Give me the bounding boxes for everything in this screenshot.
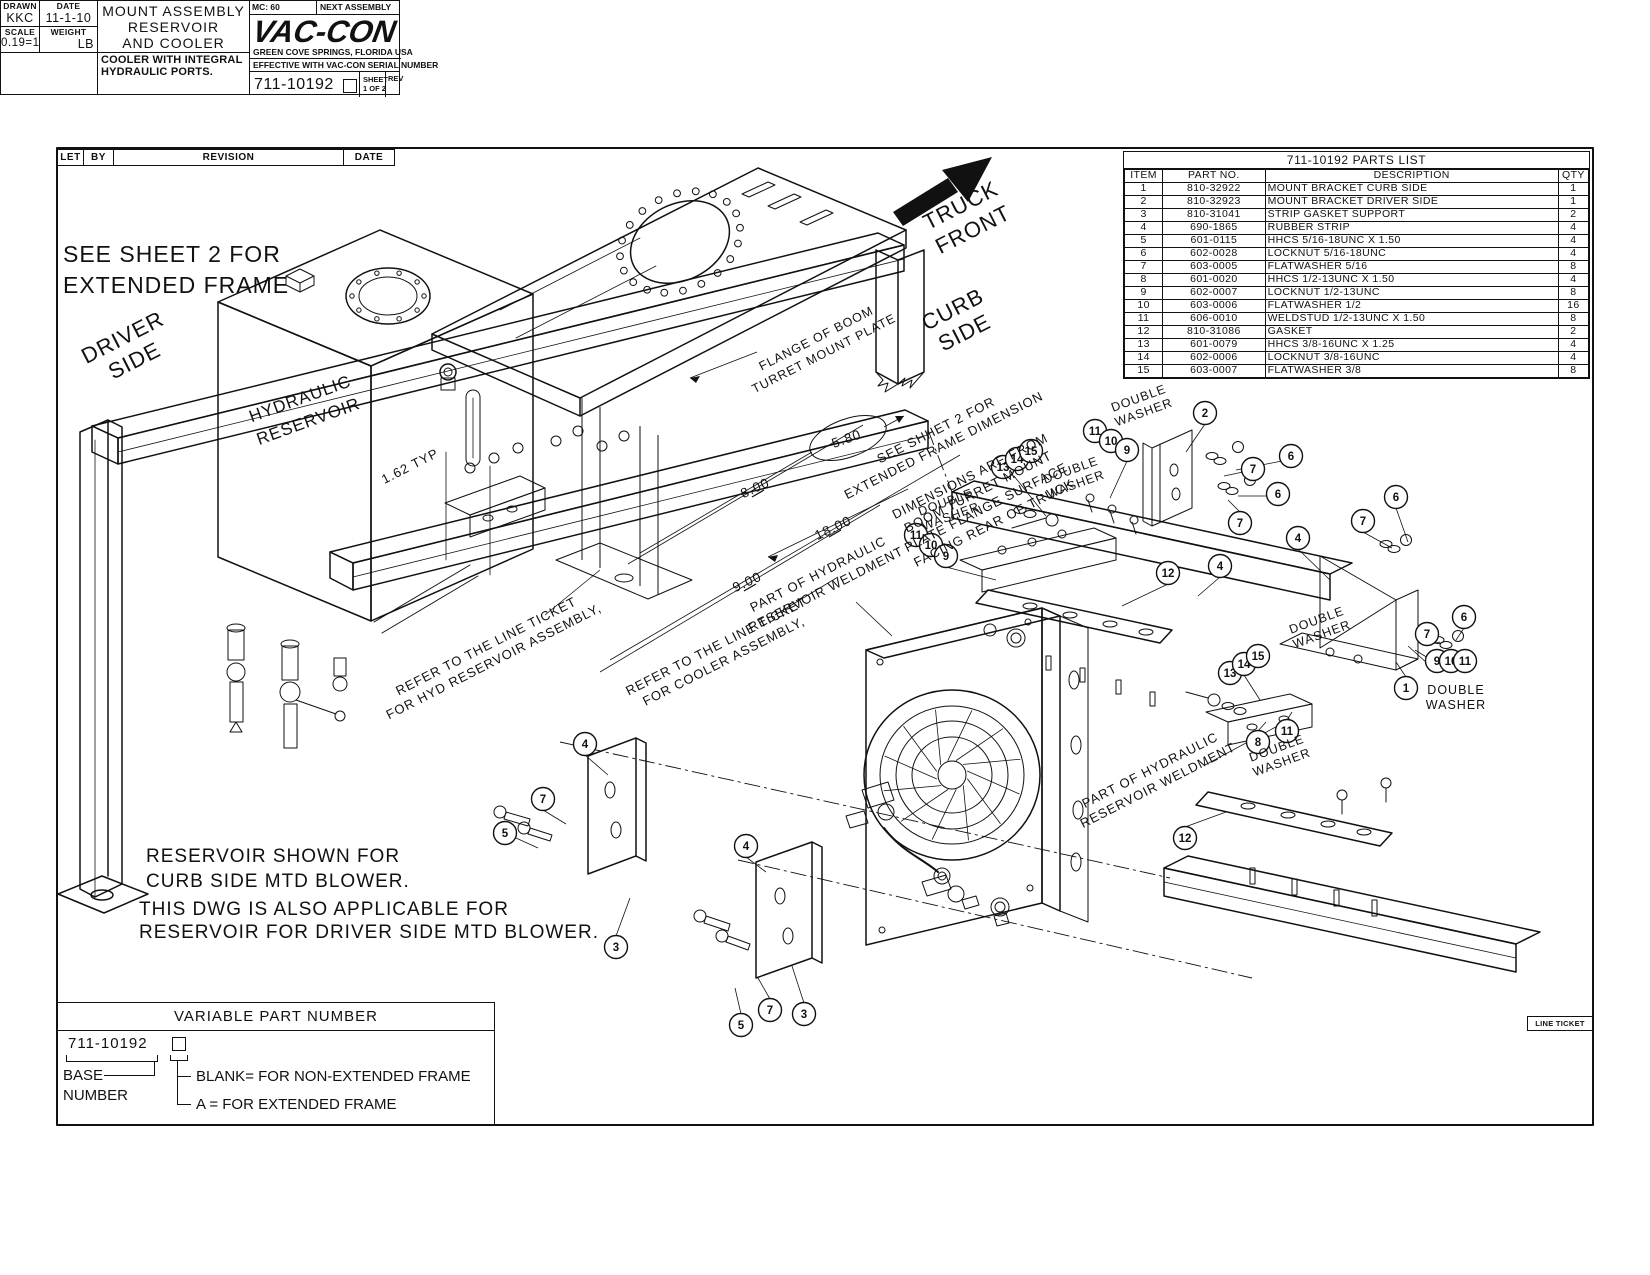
scale-label: SCALE bbox=[1, 27, 39, 37]
vpn-base-label-1: BASE bbox=[63, 1067, 103, 1084]
driver-side-stand bbox=[58, 420, 148, 913]
parts-col-partno: PART NO. bbox=[1163, 170, 1265, 183]
balloon-item-15: 15 bbox=[1247, 645, 1270, 668]
parts-cell: 4 bbox=[1558, 248, 1588, 261]
parts-cell: GASKET bbox=[1265, 326, 1558, 339]
svg-text:9: 9 bbox=[1124, 445, 1130, 457]
balloon-item-6: 6 bbox=[1267, 483, 1290, 506]
drawing-label: RESERVOIR SHOWN FORCURB SIDE MTD BLOWER. bbox=[146, 846, 410, 892]
drawing-title-line1: MOUNT ASSEMBLY bbox=[98, 3, 249, 19]
parts-cell: 810-32923 bbox=[1163, 196, 1265, 209]
date-label: DATE bbox=[40, 1, 97, 11]
table-row: 14602-0006LOCKNUT 3/8-16UNC4 bbox=[1125, 352, 1589, 365]
parts-cell: 16 bbox=[1558, 300, 1588, 313]
drawing-label: 5.80 bbox=[830, 427, 864, 451]
title-block: DRAWN KKC DATE 11-1-10 SCALE 0.19=1 WEIG… bbox=[0, 0, 400, 95]
parts-cell: 810-31086 bbox=[1163, 326, 1265, 339]
empty-box bbox=[0, 52, 98, 95]
balloon-item-7: 7 bbox=[1242, 458, 1265, 481]
balloon-item-7: 7 bbox=[1416, 623, 1439, 646]
drawn-label: DRAWN bbox=[1, 1, 39, 11]
parts-col-description: DESCRIPTION bbox=[1265, 170, 1558, 183]
rev-col-date: DATE bbox=[344, 150, 394, 165]
drawing-label: 9.00 bbox=[730, 569, 764, 595]
parts-cell: WELDSTUD 1/2-13UNC X 1.50 bbox=[1265, 313, 1558, 326]
parts-cell: 602-0028 bbox=[1163, 248, 1265, 261]
date-box: DATE 11-1-10 bbox=[39, 0, 98, 27]
drawing-label: THIS DWG IS ALSO APPLICABLE FORRESERVOIR… bbox=[139, 899, 599, 943]
parts-cell: LOCKNUT 5/16-18UNC bbox=[1265, 248, 1558, 261]
svg-text:7: 7 bbox=[1237, 518, 1243, 530]
table-row: 10603-0006FLATWASHER 1/216 bbox=[1125, 300, 1589, 313]
vpn-suffix-bracket bbox=[170, 1055, 188, 1061]
balloon-item-12: 12 bbox=[1174, 827, 1197, 850]
svg-text:1: 1 bbox=[1403, 683, 1410, 695]
parts-cell: 606-0010 bbox=[1163, 313, 1265, 326]
parts-cell: 4 bbox=[1558, 339, 1588, 352]
svg-text:7: 7 bbox=[1360, 516, 1366, 528]
svg-text:12: 12 bbox=[1179, 833, 1192, 845]
next-assembly: NEXT ASSEMBLY bbox=[320, 2, 391, 12]
svg-text:4: 4 bbox=[582, 739, 589, 751]
mc-number: MC: 60 bbox=[252, 2, 280, 12]
parts-cell: 601-0020 bbox=[1163, 274, 1265, 287]
balloon-item-11: 11 bbox=[1454, 650, 1477, 673]
vpn-line bbox=[177, 1076, 191, 1077]
table-row: 5601-0115HHCS 5/16-18UNC X 1.504 bbox=[1125, 235, 1589, 248]
svg-text:5: 5 bbox=[502, 828, 509, 840]
parts-list: 711-10192 PARTS LIST ITEM PART NO. DESCR… bbox=[1123, 151, 1590, 379]
balloon-item-7: 7 bbox=[759, 999, 782, 1022]
drawing-label: REFER TO THE LINE TICKETFOR HYD RESERVOI… bbox=[376, 585, 604, 722]
parts-cell: 8 bbox=[1558, 287, 1588, 300]
svg-text:2: 2 bbox=[1202, 408, 1208, 420]
parts-cell: 2 bbox=[1558, 326, 1588, 339]
vpn-suffix-box bbox=[172, 1037, 186, 1051]
table-row: 9602-0007LOCKNUT 1/2-13UNC8 bbox=[1125, 287, 1589, 300]
table-row: 6602-0028LOCKNUT 5/16-18UNC4 bbox=[1125, 248, 1589, 261]
title-note-line1: COOLER WITH INTEGRAL bbox=[98, 53, 249, 66]
drawing-label: 18.00 bbox=[812, 513, 854, 543]
drawing-title-line3: AND COOLER bbox=[98, 35, 249, 51]
revision-table: LET BY REVISION DATE bbox=[57, 149, 395, 166]
table-row: 2810-32923MOUNT BRACKET DRIVER SIDE1 bbox=[1125, 196, 1589, 209]
svg-text:7: 7 bbox=[1424, 629, 1430, 641]
variable-part-number-block: VARIABLE PART NUMBER 711-10192 BASE NUMB… bbox=[57, 1002, 495, 1125]
divider bbox=[316, 1, 317, 14]
svg-text:6: 6 bbox=[1393, 492, 1399, 504]
drawn-box: DRAWN KKC bbox=[0, 0, 40, 27]
table-row: 3810-31041STRIP GASKET SUPPORT2 bbox=[1125, 209, 1589, 222]
parts-cell: 8 bbox=[1125, 274, 1163, 287]
balloon-item-5: 5 bbox=[494, 822, 517, 845]
blower-deck-plate bbox=[432, 168, 906, 416]
parts-cell: 810-32922 bbox=[1163, 183, 1265, 196]
scale-box: SCALE 0.19=1 bbox=[0, 26, 40, 53]
parts-header-row: ITEM PART NO. DESCRIPTION QTY bbox=[1125, 170, 1589, 183]
drawing-label: DOUBLEWASHER bbox=[1426, 683, 1486, 712]
line-ticket-box: LINE TICKET bbox=[1527, 1016, 1593, 1031]
weight-box: WEIGHT LB bbox=[39, 26, 98, 53]
parts-cell: 4 bbox=[1558, 235, 1588, 248]
vac-con-logo: VAC-CON bbox=[250, 14, 399, 50]
title-note-line2: HYDRAULIC PORTS. bbox=[98, 66, 249, 78]
parts-cell: 5 bbox=[1125, 235, 1163, 248]
parts-cell: 10 bbox=[1125, 300, 1163, 313]
balloon-item-5: 5 bbox=[730, 1014, 753, 1037]
parts-cell: 602-0006 bbox=[1163, 352, 1265, 365]
logo-box: MC: 60 NEXT ASSEMBLY VAC-CON GREEN COVE … bbox=[249, 0, 400, 95]
table-row: 12810-31086GASKET2 bbox=[1125, 326, 1589, 339]
vpn-line bbox=[177, 1060, 178, 1104]
parts-cell: LOCKNUT 3/8-16UNC bbox=[1265, 352, 1558, 365]
scale-value: 0.19=1 bbox=[1, 37, 39, 49]
svg-text:4: 4 bbox=[1217, 561, 1224, 573]
vpn-line bbox=[154, 1061, 155, 1075]
balloon-item-7: 7 bbox=[1352, 510, 1375, 533]
parts-cell: 8 bbox=[1558, 365, 1588, 378]
parts-cell: 9 bbox=[1125, 287, 1163, 300]
svg-text:3: 3 bbox=[613, 942, 619, 954]
parts-cell: 13 bbox=[1125, 339, 1163, 352]
parts-cell: 603-0005 bbox=[1163, 261, 1265, 274]
svg-text:11: 11 bbox=[1089, 426, 1102, 438]
engineering-drawing-sheet: 2676711109131415111091244767691011113141… bbox=[0, 0, 1650, 1275]
drawing-label: PART OF HYDRAULICRESERVOIR WELDMENT bbox=[1070, 724, 1238, 831]
parts-list-title: 711-10192 PARTS LIST bbox=[1124, 152, 1589, 169]
table-row: 7603-0005FLATWASHER 5/168 bbox=[1125, 261, 1589, 274]
parts-col-item: ITEM bbox=[1125, 170, 1163, 183]
balloon-item-4: 4 bbox=[1209, 555, 1232, 578]
balloon-item-6: 6 bbox=[1453, 606, 1476, 629]
parts-cell: 4 bbox=[1558, 274, 1588, 287]
parts-cell: LOCKNUT 1/2-13UNC bbox=[1265, 287, 1558, 300]
vpn-header: VARIABLE PART NUMBER bbox=[58, 1003, 494, 1031]
table-row: 11606-0010WELDSTUD 1/2-13UNC X 1.508 bbox=[1125, 313, 1589, 326]
parts-cell: 7 bbox=[1125, 261, 1163, 274]
parts-cell: 2 bbox=[1558, 209, 1588, 222]
balloon-item-4: 4 bbox=[1287, 527, 1310, 550]
drawing-label: 1.62 TYP bbox=[379, 445, 441, 486]
svg-text:3: 3 bbox=[801, 1009, 807, 1021]
drawing-label: REFER TO THE LINE TICKETFOR COOLER ASSEM… bbox=[623, 594, 816, 714]
drawn-value: KKC bbox=[1, 11, 39, 25]
svg-text:11: 11 bbox=[1459, 656, 1472, 668]
divider bbox=[250, 58, 401, 59]
svg-text:7: 7 bbox=[1250, 464, 1256, 476]
sheet-value: 1 OF 2 bbox=[363, 84, 386, 93]
drawing-label: DRIVERSIDE bbox=[77, 306, 180, 392]
parts-cell: FLATWASHER 1/2 bbox=[1265, 300, 1558, 313]
balloon-item-3: 3 bbox=[793, 1003, 816, 1026]
parts-cell: 1 bbox=[1558, 196, 1588, 209]
drawing-title-box: MOUNT ASSEMBLY RESERVOIR AND COOLER bbox=[97, 0, 250, 53]
rev-label: REV bbox=[388, 74, 403, 83]
svg-text:6: 6 bbox=[1461, 612, 1467, 624]
parts-cell: MOUNT BRACKET DRIVER SIDE bbox=[1265, 196, 1558, 209]
vpn-base-label-2: NUMBER bbox=[63, 1087, 128, 1104]
svg-text:6: 6 bbox=[1275, 489, 1281, 501]
parts-cell: 8 bbox=[1558, 261, 1588, 274]
drawing-label: 8.00 bbox=[738, 475, 772, 501]
parts-cell: 602-0007 bbox=[1163, 287, 1265, 300]
vpn-number-bracket bbox=[66, 1055, 158, 1062]
parts-cell: 3 bbox=[1125, 209, 1163, 222]
weight-value: LB bbox=[40, 37, 97, 51]
parts-cell: 6 bbox=[1125, 248, 1163, 261]
rev-check-box bbox=[343, 79, 357, 93]
parts-cell: 601-0115 bbox=[1163, 235, 1265, 248]
parts-cell: HHCS 1/2-13UNC X 1.50 bbox=[1265, 274, 1558, 287]
date-value: 11-1-10 bbox=[40, 11, 97, 25]
parts-cell: HHCS 3/8-16UNC X 1.25 bbox=[1265, 339, 1558, 352]
balloon-item-3: 3 bbox=[605, 936, 628, 959]
balloon-item-4: 4 bbox=[574, 733, 597, 756]
parts-cell: 14 bbox=[1125, 352, 1163, 365]
rev-col-let: LET bbox=[58, 150, 84, 165]
drawing-number: 711-10192 bbox=[254, 76, 334, 94]
parts-cell: 690-1865 bbox=[1163, 222, 1265, 235]
parts-cell: HHCS 5/16-18UNC X 1.50 bbox=[1265, 235, 1558, 248]
drawing-label: FLANGE OF BOOMTURRET MOUNT PLATE bbox=[742, 296, 898, 396]
balloon-item-2: 2 bbox=[1194, 402, 1217, 425]
parts-cell: 4 bbox=[1125, 222, 1163, 235]
balloon-item-9: 9 bbox=[1116, 439, 1139, 462]
vpn-line bbox=[104, 1075, 155, 1076]
svg-text:4: 4 bbox=[743, 841, 750, 853]
table-row: 15603-0007FLATWASHER 3/88 bbox=[1125, 365, 1589, 378]
parts-cell: RUBBER STRIP bbox=[1265, 222, 1558, 235]
parts-cell: 1 bbox=[1558, 183, 1588, 196]
parts-table: ITEM PART NO. DESCRIPTION QTY 1810-32922… bbox=[1124, 169, 1589, 378]
rev-col-revision: REVISION bbox=[114, 150, 344, 165]
parts-cell: FLATWASHER 5/16 bbox=[1265, 261, 1558, 274]
balloon-item-1: 1 bbox=[1395, 677, 1418, 700]
svg-text:7: 7 bbox=[767, 1005, 773, 1017]
drawing-label: HYDRAULICRESERVOIR bbox=[246, 371, 363, 449]
drawing-title-line2: RESERVOIR bbox=[98, 19, 249, 35]
parts-table-body: 1810-32922MOUNT BRACKET CURB SIDE12810-3… bbox=[1125, 183, 1589, 378]
vpn-base-number: 711-10192 bbox=[68, 1035, 148, 1052]
weight-label: WEIGHT bbox=[40, 27, 97, 37]
vpn-option-a: A = FOR EXTENDED FRAME bbox=[196, 1096, 396, 1113]
svg-text:15: 15 bbox=[1252, 651, 1265, 663]
parts-cell: 810-31041 bbox=[1163, 209, 1265, 222]
parts-cell: 12 bbox=[1125, 326, 1163, 339]
drawing-label: DOUBLEWASHER bbox=[1108, 381, 1175, 429]
parts-cell: 8 bbox=[1558, 313, 1588, 326]
parts-cell: 15 bbox=[1125, 365, 1163, 378]
title-note-box: COOLER WITH INTEGRAL HYDRAULIC PORTS. bbox=[97, 52, 250, 95]
balloon-item-7: 7 bbox=[532, 788, 555, 811]
parts-cell: 1 bbox=[1125, 183, 1163, 196]
balloon-item-4: 4 bbox=[735, 835, 758, 858]
divider bbox=[385, 72, 386, 97]
parts-col-qty: QTY bbox=[1558, 170, 1588, 183]
drawing-label: SEE SHEET 2 FOREXTENDED FRAME bbox=[63, 241, 289, 298]
parts-cell: 4 bbox=[1558, 222, 1588, 235]
svg-text:7: 7 bbox=[540, 794, 546, 806]
parts-cell: MOUNT BRACKET CURB SIDE bbox=[1265, 183, 1558, 196]
parts-cell: 603-0007 bbox=[1163, 365, 1265, 378]
balloon-item-7: 7 bbox=[1229, 512, 1252, 535]
parts-cell: 601-0079 bbox=[1163, 339, 1265, 352]
parts-cell: 11 bbox=[1125, 313, 1163, 326]
svg-text:6: 6 bbox=[1288, 451, 1294, 463]
svg-text:5: 5 bbox=[738, 1020, 745, 1032]
drawing-label: DOUBLEWASHER bbox=[1286, 603, 1353, 651]
table-row: 4690-1865RUBBER STRIP4 bbox=[1125, 222, 1589, 235]
parts-cell: FLATWASHER 3/8 bbox=[1265, 365, 1558, 378]
drawing-label: CURBSIDE bbox=[917, 283, 999, 359]
svg-text:12: 12 bbox=[1162, 568, 1175, 580]
vpn-option-blank: BLANK= FOR NON-EXTENDED FRAME bbox=[196, 1068, 471, 1085]
item-balloons: 2676711109131415111091244767691011113141… bbox=[494, 402, 1477, 1037]
table-row: 13601-0079HHCS 3/8-16UNC X 1.254 bbox=[1125, 339, 1589, 352]
effective-note: EFFECTIVE WITH VAC-CON SERIAL NUMBER bbox=[253, 60, 438, 70]
balloon-item-12: 12 bbox=[1157, 562, 1180, 585]
parts-cell: STRIP GASKET SUPPORT bbox=[1265, 209, 1558, 222]
parts-cell: 4 bbox=[1558, 352, 1588, 365]
rev-col-by: BY bbox=[84, 150, 114, 165]
table-row: 1810-32922MOUNT BRACKET CURB SIDE1 bbox=[1125, 183, 1589, 196]
balloon-item-6: 6 bbox=[1385, 486, 1408, 509]
svg-text:4: 4 bbox=[1295, 533, 1302, 545]
table-row: 8601-0020HHCS 1/2-13UNC X 1.504 bbox=[1125, 274, 1589, 287]
parts-cell: 603-0006 bbox=[1163, 300, 1265, 313]
company-address: GREEN COVE SPRINGS, FLORIDA USA bbox=[253, 47, 413, 57]
balloon-item-6: 6 bbox=[1280, 445, 1303, 468]
vpn-line bbox=[177, 1104, 191, 1105]
cooler-drawing bbox=[846, 608, 1088, 945]
divider bbox=[359, 72, 360, 97]
parts-cell: 2 bbox=[1125, 196, 1163, 209]
